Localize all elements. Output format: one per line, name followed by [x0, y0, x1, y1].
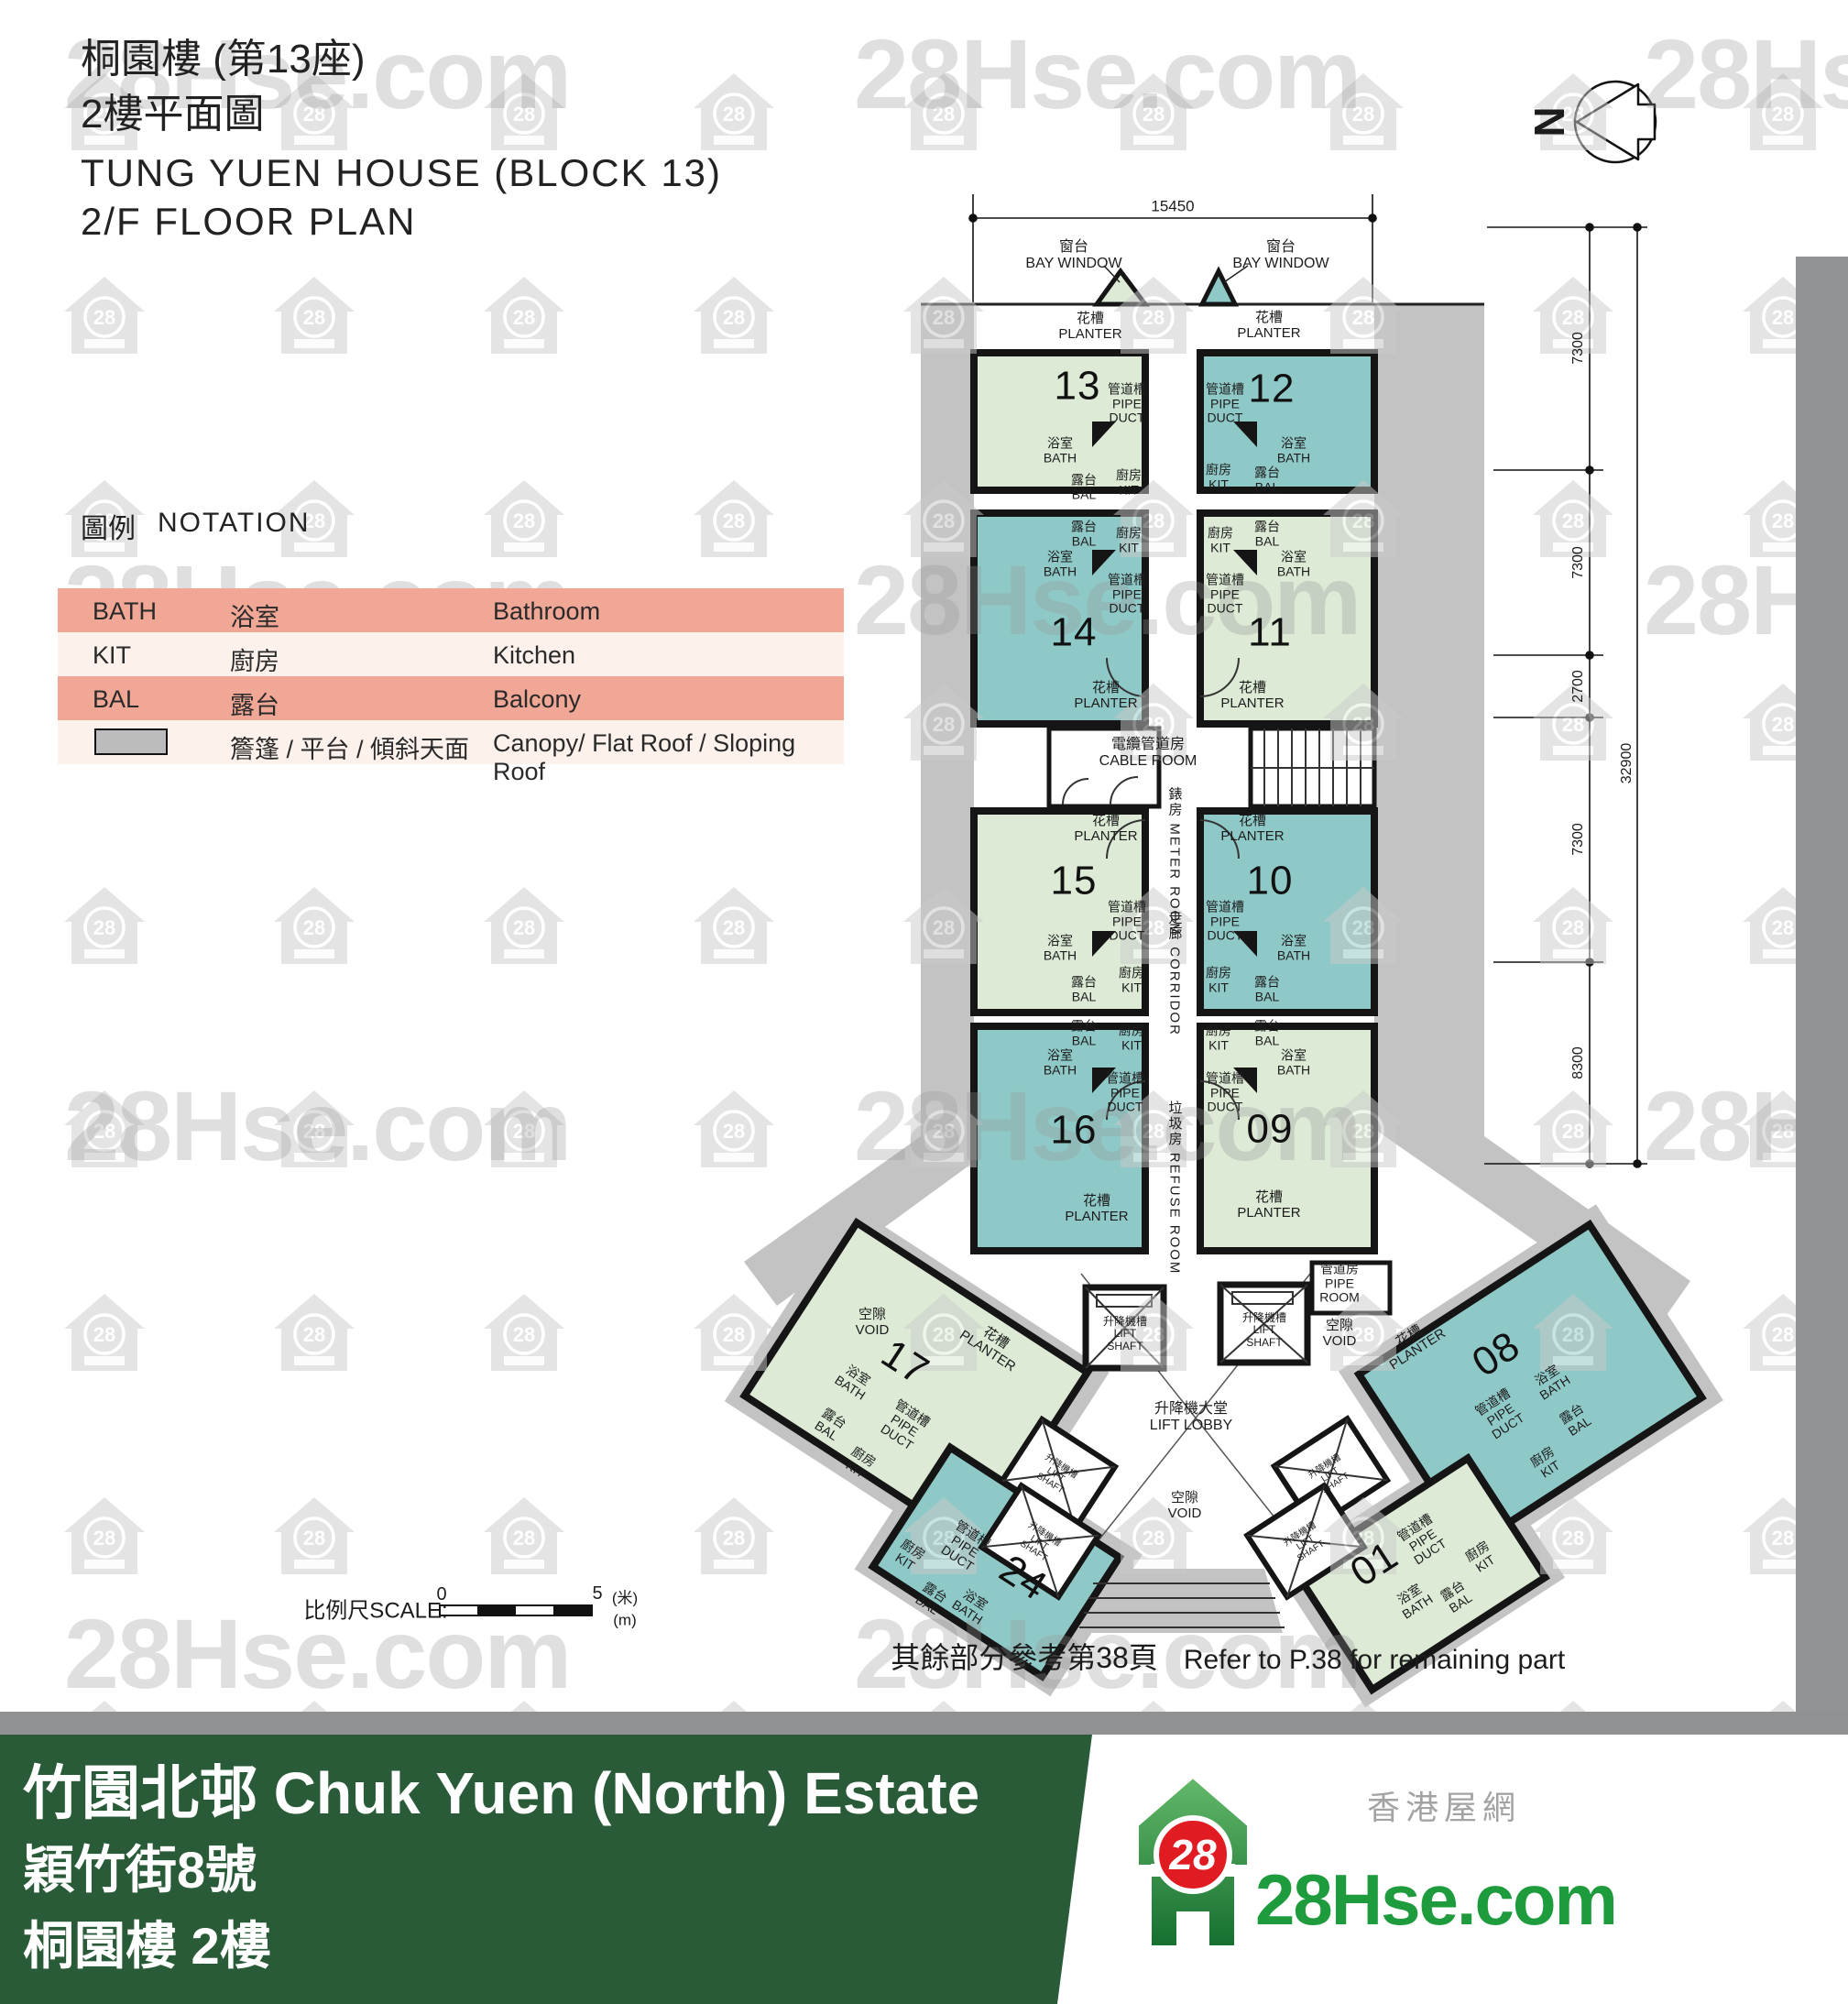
notation-heading-en: NOTATION [158, 508, 311, 539]
bath-label: 浴室 BATH [1277, 934, 1310, 962]
building-floor: 桐園樓 2樓 [23, 1905, 271, 1979]
legend-row-bath: BATH 浴室 Bathroom [58, 588, 844, 632]
planter-label: 花槽 PLANTER [1058, 312, 1121, 343]
unit-09-number: 09 [1247, 1106, 1294, 1151]
legend-abbr: BATH [93, 597, 157, 626]
unit-14-number: 14 [1051, 609, 1098, 654]
pipe-duct-label: 管道槽 PIPE DUCT [1106, 1071, 1144, 1114]
dim-top: 15450 [1151, 197, 1194, 214]
title-zh-line1: 桐園樓 (第13座) [81, 26, 365, 84]
scale-label: 比例尺SCALE: [303, 1600, 447, 1625]
balcony-label: 露台 BAL [1071, 520, 1097, 548]
kitchen-label: 廚房 KIT [1206, 463, 1231, 491]
scale-unit-en: (m) [613, 1611, 636, 1628]
unit-15-number: 15 [1051, 858, 1098, 903]
bay-window-label: 窗台 BAY WINDOW [1025, 239, 1121, 272]
pipe-duct-label: 管道槽 PIPE DUCT [1206, 382, 1244, 425]
scale-unit-zh: (米) [612, 1589, 638, 1606]
scale-end: 5 [592, 1583, 602, 1604]
unit-11-number: 11 [1248, 609, 1292, 654]
bottom-divider-bar [0, 1712, 1848, 1735]
logo-house-icon: 28 [1134, 1774, 1252, 1950]
void-label: 空隙 VOID [1323, 1319, 1357, 1350]
title-zh-line2: 2樓平面圖 [81, 81, 264, 139]
corridor-label: 走廊 CORRIDOR [1165, 910, 1185, 1036]
title-en-line2: 2/F FLOOR PLAN [81, 200, 416, 244]
balcony-label: 露台 BAL [1254, 465, 1280, 494]
planter-label: 花槽 PLANTER [1074, 681, 1137, 712]
planter-label: 花槽 PLANTER [1237, 311, 1300, 342]
bath-label: 浴室 BATH [1277, 550, 1310, 578]
refuse-room-label: 垃圾房 REFUSE ROOM [1165, 1101, 1185, 1276]
kitchen-label: 廚房 KIT [1206, 966, 1231, 994]
legend-zh: 浴室 [230, 597, 279, 633]
legend-abbr: KIT [93, 641, 131, 670]
planter-label: 花槽 PLANTER [1220, 681, 1284, 712]
legend-en: Canopy/ Flat Roof / Sloping Roof [493, 729, 844, 786]
legend-zh: 露台 [230, 685, 279, 721]
pipe-room-label: 管道房 PIPE ROOM [1319, 1262, 1360, 1305]
pipe-duct-label: 管道槽 PIPE DUCT [1206, 900, 1244, 943]
pipe-duct-label: 管道槽 PIPE DUCT [1108, 573, 1146, 616]
void-label: 空隙 VOID [1168, 1491, 1202, 1522]
legend-en: Balcony [493, 685, 581, 714]
bath-label: 浴室 BATH [1044, 436, 1077, 465]
unit-13-number: 13 [1055, 363, 1101, 408]
legend-zh: 簷篷 / 平台 / 傾斜天面 [230, 729, 469, 765]
planter-label: 花槽 PLANTER [1220, 814, 1284, 845]
legend-zh: 廚房 [230, 641, 279, 677]
planter-label: 花槽 PLANTER [1065, 1194, 1128, 1225]
note-en: Refer to P.38 for remaining part [1184, 1645, 1565, 1676]
unit-16-number: 16 [1051, 1107, 1098, 1152]
kitchen-label: 廚房 KIT [1116, 468, 1142, 497]
right-edge-bar [1796, 257, 1848, 1712]
notation-heading-zh: 圖例 [81, 506, 136, 546]
pipe-duct-label: 管道槽 PIPE DUCT [1108, 382, 1146, 425]
kitchen-label: 廚房 KIT [1208, 526, 1233, 554]
pipe-duct-label: 管道槽 PIPE DUCT [1206, 1071, 1244, 1114]
balcony-label: 露台 BAL [1254, 520, 1280, 548]
legend-row-canopy: 簷篷 / 平台 / 傾斜天面 Canopy/ Flat Roof / Slopi… [58, 720, 844, 764]
north-label: N [1526, 106, 1574, 137]
dim-overall: 32900 [1619, 743, 1635, 784]
dim-seg2: 7300 [1570, 546, 1587, 579]
lift-shaft-label: 升降機槽 LIFT SHAFT [1103, 1316, 1147, 1352]
void-label: 空隙 VOID [856, 1308, 890, 1339]
dim-seg1: 7300 [1570, 332, 1587, 365]
bay-window-label: 窗台 BAY WINDOW [1232, 239, 1329, 272]
canopy-swatch [94, 728, 168, 755]
bath-label: 浴室 BATH [1277, 1048, 1310, 1077]
cable-room-label: 電纜管道房 CABLE ROOM [1099, 737, 1197, 770]
lift-lobby-label: 升降機大堂 LIFT LOBBY [1150, 1401, 1232, 1434]
dim-seg4: 7300 [1570, 823, 1587, 856]
unit-10-number: 10 [1247, 858, 1294, 903]
title-en-line1: TUNG YUEN HOUSE (BLOCK 13) [81, 151, 722, 195]
floor-plan-drawing: 28 [0, 0, 1848, 2004]
floor-plan-page: 28 [0, 0, 1848, 2004]
balcony-label: 露台 BAL [1071, 975, 1097, 1003]
balcony-label: 露台 BAL [1254, 1019, 1280, 1047]
estate-address: 穎竹街8號 [23, 1829, 257, 1903]
bath-label: 浴室 BATH [1044, 934, 1077, 962]
balcony-label: 露台 BAL [1071, 473, 1097, 501]
legend-en: Bathroom [493, 597, 600, 626]
unit-12-number: 12 [1249, 366, 1296, 411]
logo-badge: 28 [1168, 1831, 1217, 1878]
planter-label: 花槽 PLANTER [1074, 814, 1137, 845]
balcony-label: 露台 BAL [1254, 975, 1280, 1003]
logo-text: 28Hse.com [1255, 1858, 1616, 1942]
bath-label: 浴室 BATH [1277, 436, 1310, 465]
estate-name: 竹園北邨 Chuk Yuen (North) Estate [23, 1747, 979, 1831]
legend-row-kit: KIT 廚房 Kitchen [58, 632, 844, 676]
watermark-house-grid [0, 0, 1848, 1712]
dim-seg3: 2700 [1570, 670, 1587, 703]
pipe-duct-label: 管道槽 PIPE DUCT [1108, 900, 1146, 943]
planter-label: 花槽 PLANTER [1237, 1190, 1300, 1221]
legend-en: Kitchen [493, 641, 575, 670]
kitchen-label: 廚房 KIT [1206, 1024, 1231, 1052]
site-name-zh: 香港屋網 [1367, 1781, 1521, 1829]
kitchen-label: 廚房 KIT [1119, 1024, 1144, 1052]
note-zh: 其餘部分參考第38頁 [891, 1642, 1158, 1675]
dim-seg5: 8300 [1570, 1046, 1587, 1079]
scale-start: 0 [436, 1584, 446, 1604]
bath-label: 浴室 BATH [1044, 550, 1077, 578]
legend-abbr: BAL [93, 685, 139, 714]
legend-row-bal: BAL 露台 Balcony [58, 676, 844, 720]
kitchen-label: 廚房 KIT [1119, 966, 1144, 994]
kitchen-label: 廚房 KIT [1116, 526, 1142, 554]
pipe-duct-label: 管道槽 PIPE DUCT [1206, 573, 1244, 616]
bath-label: 浴室 BATH [1044, 1048, 1077, 1077]
lift-shaft-label: 升降機槽 LIFT SHAFT [1242, 1312, 1286, 1349]
balcony-label: 露台 BAL [1071, 1019, 1097, 1047]
